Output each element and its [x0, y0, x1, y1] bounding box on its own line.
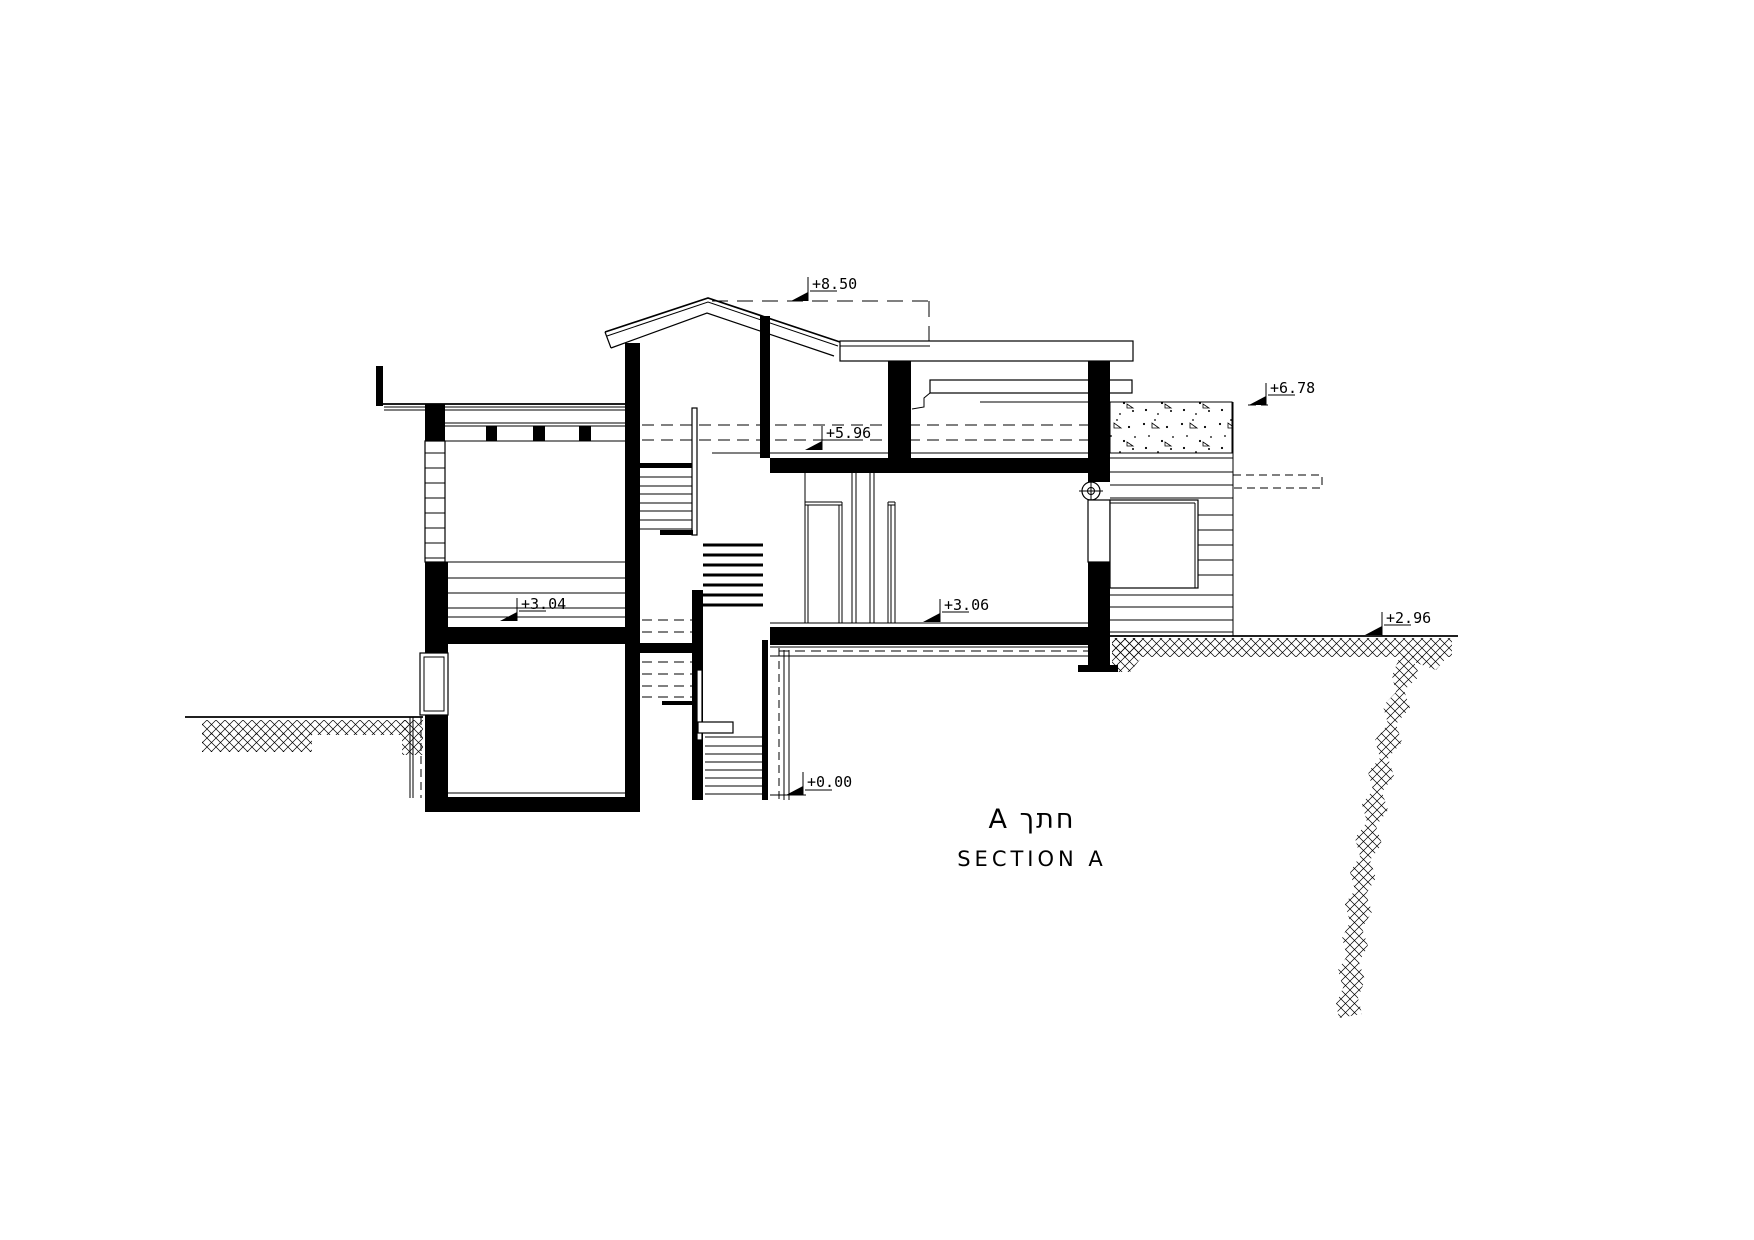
elevation-marker-000: +0.00: [786, 772, 852, 795]
middle-stair-treads: [703, 545, 763, 605]
louver-shutter: [425, 441, 445, 562]
upper-wall-left: [760, 316, 770, 458]
main-room-doors: [805, 473, 895, 623]
earth-hatch-right: [1112, 638, 1452, 657]
upper-wall-right: [888, 361, 911, 458]
level-label: +3.04: [521, 595, 566, 613]
drawing-sheet: +8.50 +6.78 +5.96 +3.04 +3.06 +2.96 +0.: [0, 0, 1754, 1240]
ceiling-slab: [770, 458, 1090, 473]
cliff-hatch: [1336, 656, 1448, 1018]
level-label: +6.78: [1270, 379, 1315, 397]
dashed-beam-outline: [1233, 475, 1322, 488]
site-ground-right: [1110, 636, 1458, 1018]
right-wing: [712, 316, 1090, 656]
annex-window: [1110, 500, 1198, 588]
basement-stair-treads: [705, 737, 763, 794]
stairwell: [625, 343, 806, 800]
pipe-symbol: [1079, 479, 1103, 503]
stair-rail-post: [692, 408, 697, 535]
annex: [1078, 361, 1322, 672]
annex-column: [1088, 361, 1110, 482]
concrete-band: [1110, 402, 1232, 453]
stair-newel: [698, 722, 733, 733]
level-label: +5.96: [826, 424, 871, 442]
basement-room: [425, 793, 640, 812]
roof-joist: [579, 426, 591, 441]
level-label: +0.00: [807, 773, 852, 791]
left-facade: [420, 441, 448, 812]
upper-stair-treads: [640, 477, 693, 529]
stair-landing: [640, 643, 693, 653]
main-floor-slab: [770, 627, 1090, 645]
site-ground-left: [185, 717, 423, 755]
elevation-marker-296: +2.96: [1365, 609, 1431, 636]
roof-edge-post: [376, 366, 383, 406]
title-english: SECTION A: [957, 847, 1107, 871]
left-roof-band: [376, 366, 640, 441]
roof-joist: [486, 426, 497, 441]
earth-backfill-wedge: [1112, 638, 1142, 672]
level-label: +2.96: [1386, 609, 1431, 627]
elevation-marker-678: +6.78: [1248, 379, 1315, 405]
roof-joist: [533, 426, 545, 441]
elevation-marker-850: +8.50: [791, 275, 857, 301]
elevation-marker-596: +5.96: [805, 424, 871, 450]
earth-hatch-left: [202, 720, 408, 735]
level-label: +3.06: [944, 596, 989, 614]
section-drawing: +8.50 +6.78 +5.96 +3.04 +3.06 +2.96 +0.: [0, 0, 1754, 1240]
gable-roof: [605, 298, 840, 356]
drawing-title: A חתך SECTION A: [957, 804, 1107, 871]
earth-hatch-wall-strip: [402, 720, 423, 755]
level-label: +8.50: [812, 275, 857, 293]
central-wall: [625, 343, 640, 800]
title-hebrew: A חתך: [989, 804, 1076, 835]
elevation-marker-306: +3.06: [923, 596, 989, 622]
underslab-lines: [770, 647, 1090, 656]
earth-hatch-left-deep: [202, 733, 312, 752]
stairwell-right-wall: [762, 640, 768, 800]
